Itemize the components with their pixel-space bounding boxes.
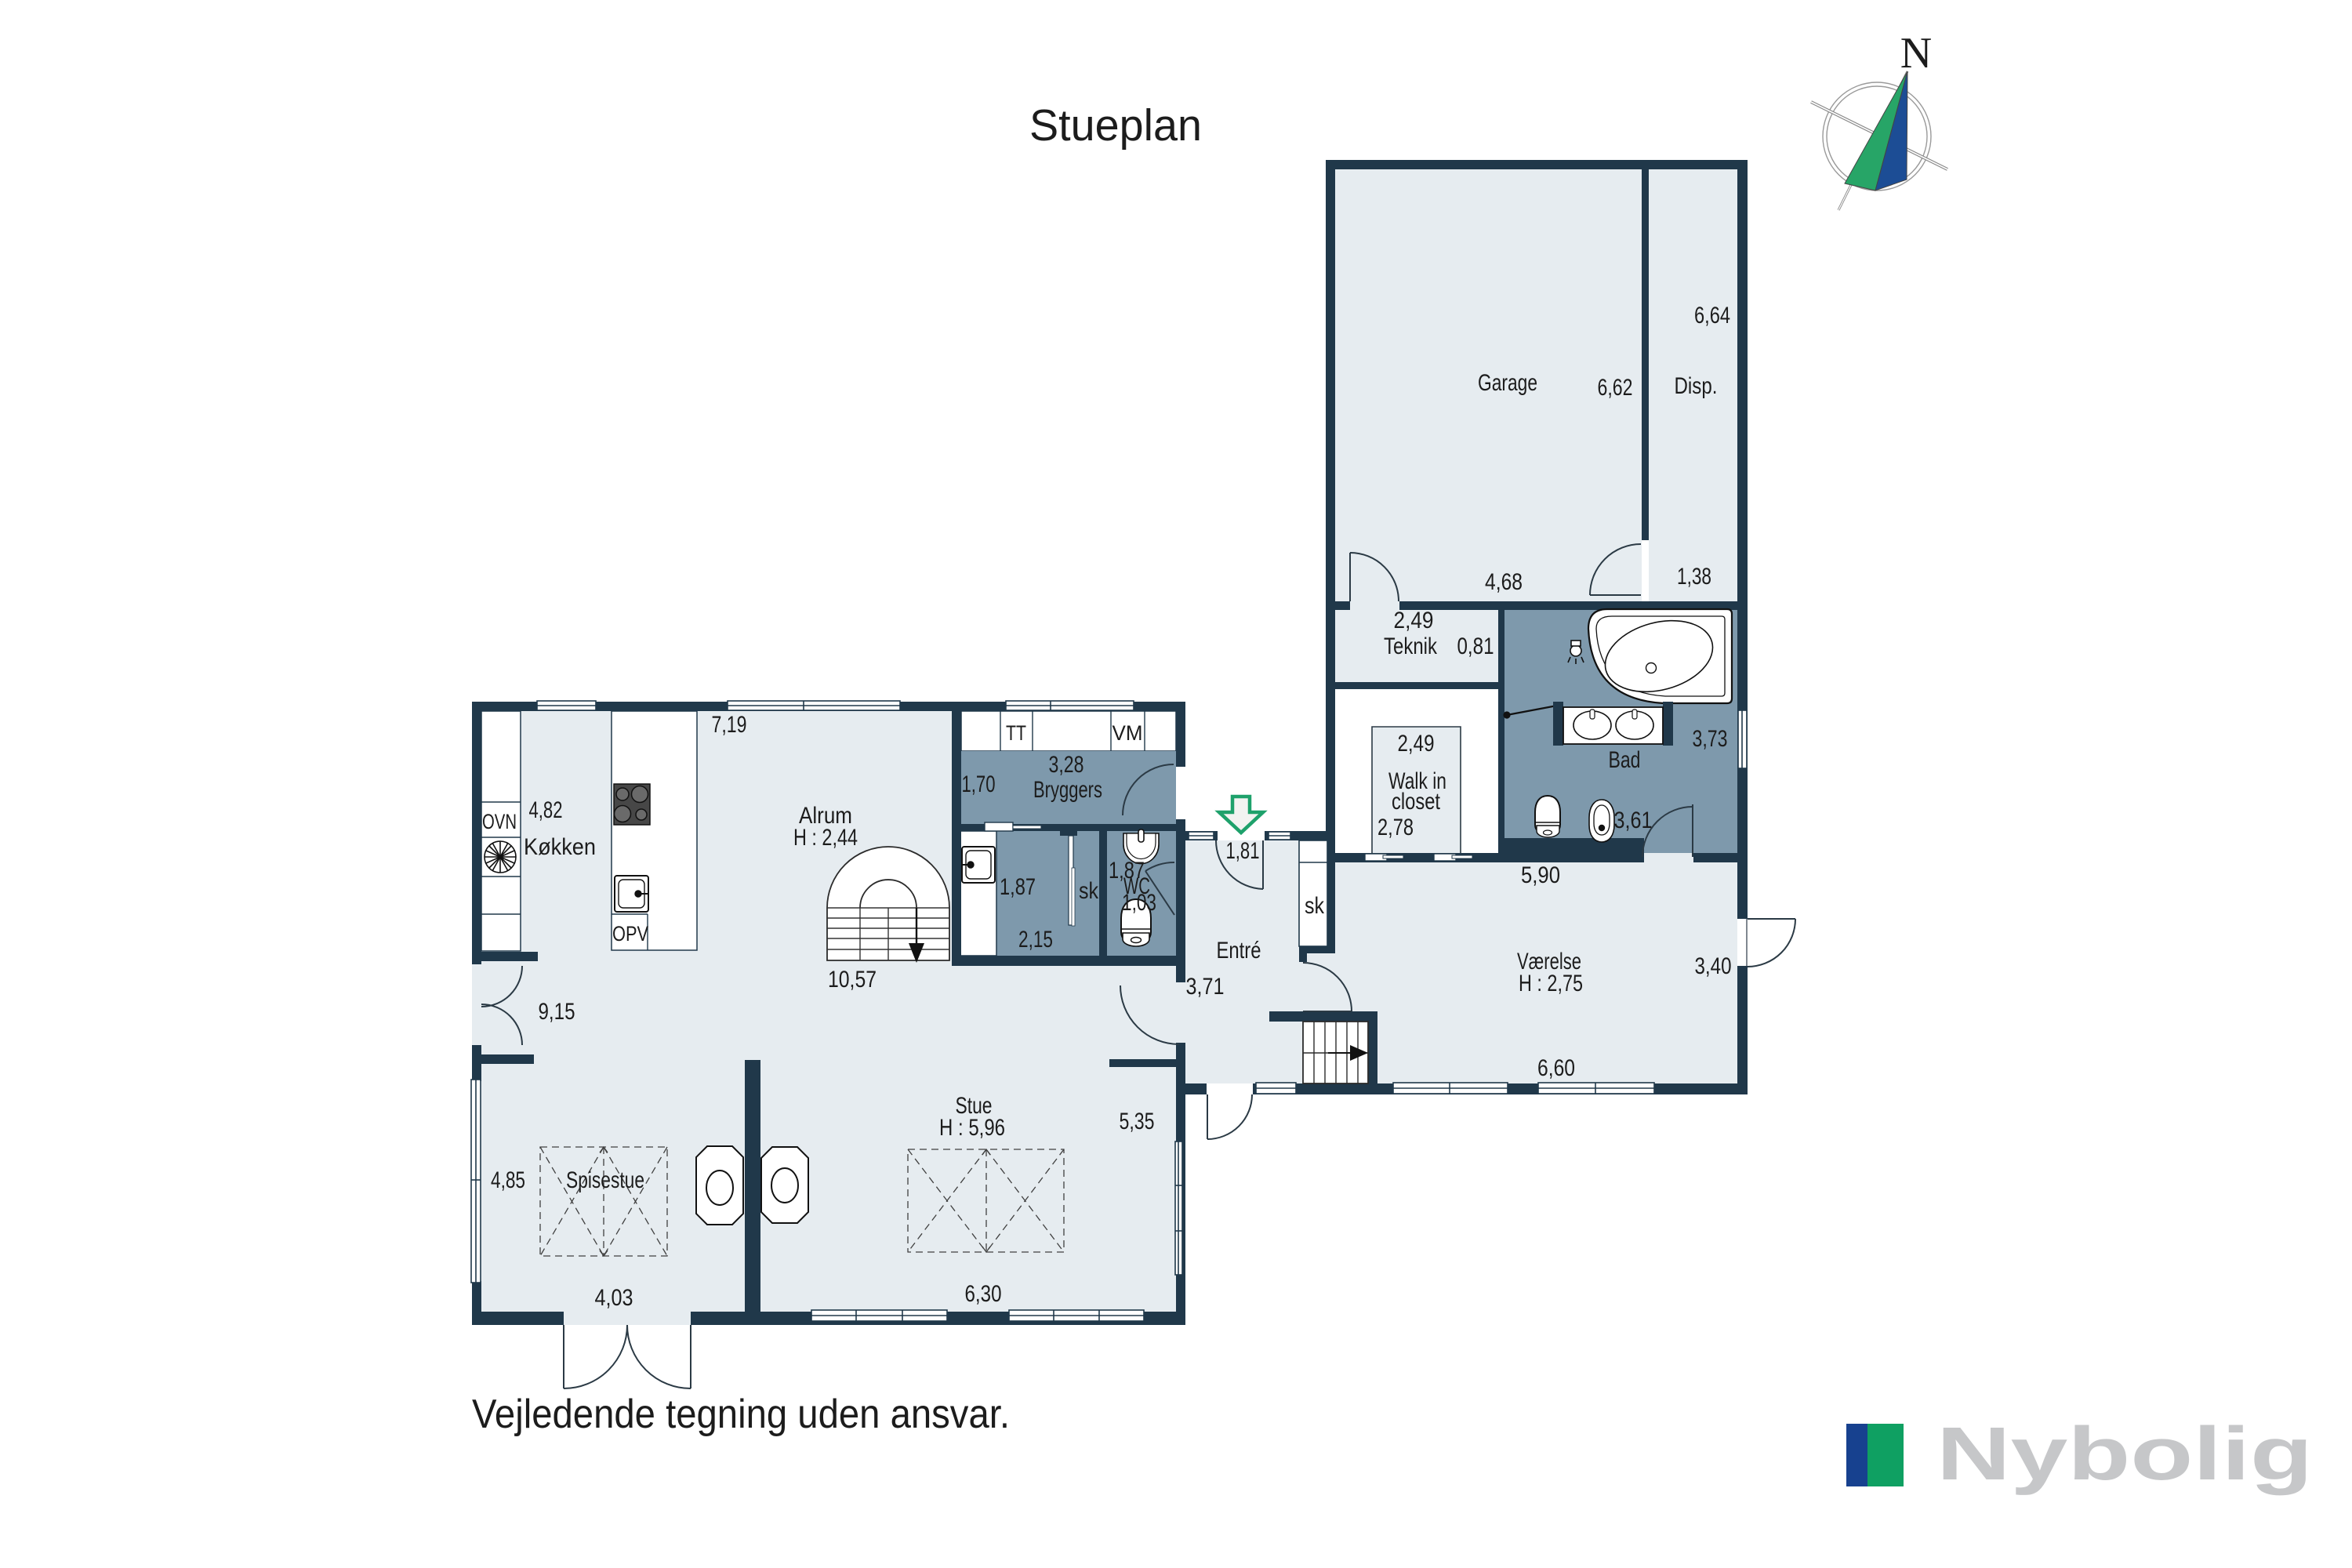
svg-text:Bad: Bad [1609, 747, 1641, 773]
svg-text:H : 2,44: H : 2,44 [793, 825, 858, 851]
svg-text:1,81: 1,81 [1226, 838, 1260, 864]
svg-text:1,70: 1,70 [962, 771, 996, 797]
svg-text:Køkken: Køkken [524, 834, 596, 860]
svg-text:4,68: 4,68 [1485, 569, 1523, 595]
svg-text:0,81: 0,81 [1457, 633, 1494, 659]
svg-text:5,35: 5,35 [1120, 1109, 1155, 1134]
svg-text:H : 5,96: H : 5,96 [939, 1115, 1005, 1141]
svg-text:5,90: 5,90 [1521, 862, 1560, 888]
svg-text:6,60: 6,60 [1537, 1055, 1575, 1081]
svg-text:sk: sk [1079, 878, 1099, 904]
svg-text:6,62: 6,62 [1598, 375, 1633, 401]
svg-text:N: N [1900, 29, 1932, 78]
svg-text:7,19: 7,19 [712, 712, 747, 738]
svg-text:Garage: Garage [1478, 370, 1537, 396]
svg-text:sk: sk [1305, 893, 1325, 919]
svg-text:Stueplan: Stueplan [1029, 100, 1202, 151]
svg-text:4,82: 4,82 [529, 797, 563, 823]
svg-text:2,49: 2,49 [1398, 731, 1435, 757]
svg-text:6,30: 6,30 [965, 1281, 1002, 1307]
svg-text:2,49: 2,49 [1394, 608, 1434, 633]
svg-text:4,03: 4,03 [595, 1285, 633, 1311]
svg-text:Teknik: Teknik [1384, 633, 1438, 659]
svg-text:OVN: OVN [482, 810, 517, 833]
svg-text:3,40: 3,40 [1695, 953, 1732, 979]
svg-text:3,73: 3,73 [1693, 726, 1728, 752]
svg-text:10,57: 10,57 [828, 967, 877, 993]
svg-text:3,71: 3,71 [1186, 974, 1225, 1000]
svg-text:2,78: 2,78 [1377, 815, 1414, 840]
svg-text:OPV: OPV [612, 922, 648, 946]
svg-text:4,85: 4,85 [491, 1167, 525, 1193]
svg-text:1,03: 1,03 [1122, 890, 1156, 916]
svg-text:9,15: 9,15 [539, 999, 575, 1025]
svg-text:1,38: 1,38 [1677, 564, 1711, 590]
svg-text:Entré: Entré [1217, 938, 1261, 964]
svg-text:6,64: 6,64 [1694, 303, 1730, 328]
svg-text:VM: VM [1112, 721, 1143, 745]
svg-text:closet: closet [1392, 789, 1441, 815]
svg-text:Nybolig: Nybolig [1936, 1412, 2313, 1496]
svg-text:3,61: 3,61 [1614, 808, 1653, 833]
svg-text:Bryggers: Bryggers [1033, 777, 1102, 803]
svg-text:Vejledende tegning uden ansvar: Vejledende tegning uden ansvar. [472, 1392, 1010, 1437]
svg-text:2,15: 2,15 [1018, 927, 1053, 953]
svg-text:H : 2,75: H : 2,75 [1519, 971, 1583, 996]
svg-text:Spisestue: Spisestue [566, 1167, 644, 1193]
svg-text:Disp.: Disp. [1675, 373, 1718, 399]
svg-text:TT: TT [1006, 721, 1026, 745]
svg-text:3,28: 3,28 [1049, 752, 1084, 778]
svg-text:1,87: 1,87 [1000, 874, 1036, 900]
